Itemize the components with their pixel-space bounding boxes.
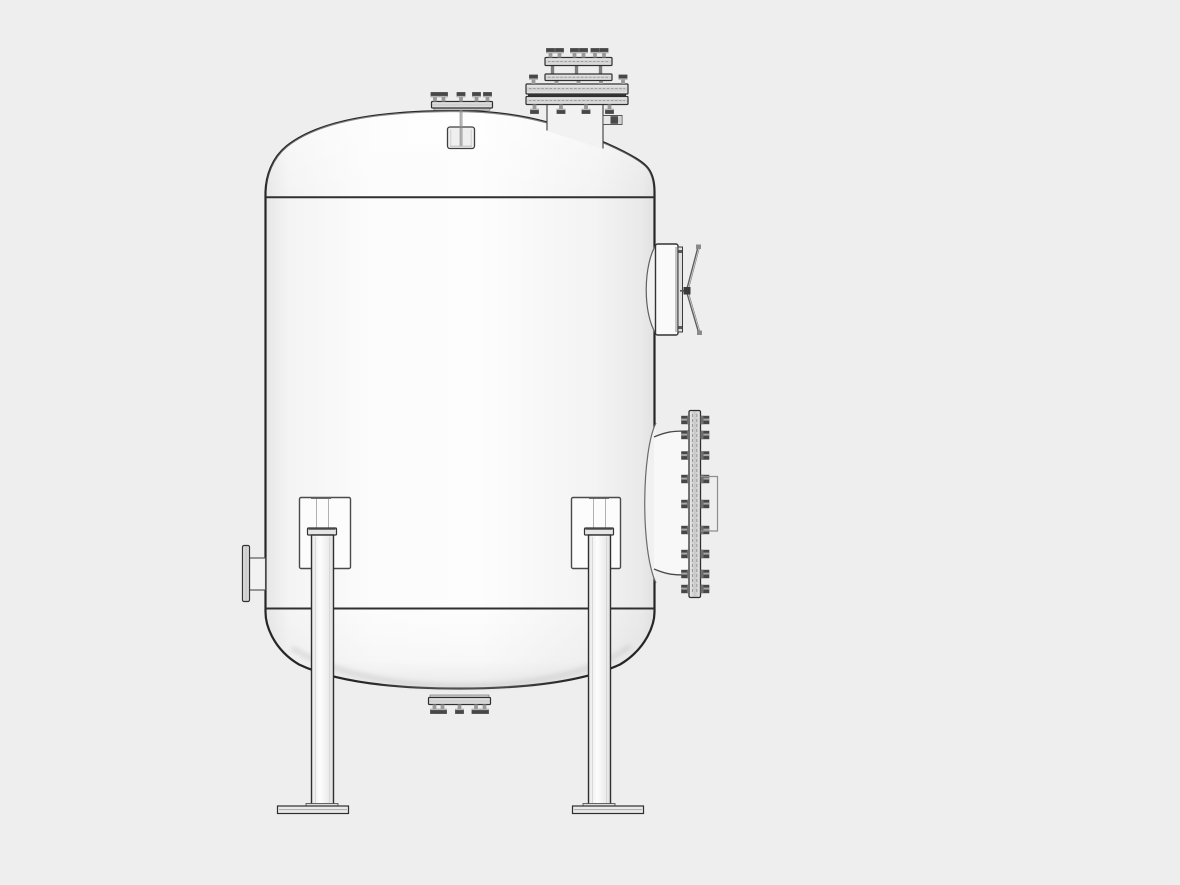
bottom-flange-bar bbox=[429, 698, 491, 705]
bottom-nozzle bbox=[429, 695, 491, 714]
crown-flange-bar bbox=[432, 102, 493, 109]
leg-column bbox=[312, 535, 334, 806]
vessel-render bbox=[0, 0, 1180, 885]
leg-column bbox=[589, 535, 611, 806]
manway-flange-plate bbox=[689, 411, 701, 598]
riser-side-tap bbox=[603, 116, 622, 125]
render-canvas bbox=[0, 0, 1180, 885]
left-nozzle-neck bbox=[250, 558, 266, 590]
crown-lug bbox=[448, 127, 475, 149]
blind-flange-edge bbox=[678, 247, 683, 332]
left-nozzle-flange bbox=[243, 546, 250, 602]
davit-pivot bbox=[684, 287, 691, 295]
cover-plate bbox=[656, 244, 679, 335]
